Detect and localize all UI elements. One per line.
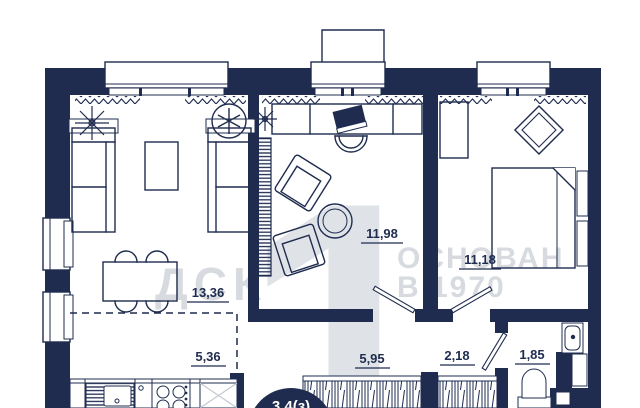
door-leaf-bathroom xyxy=(482,333,507,370)
label-study-area: 11,98 xyxy=(366,226,398,241)
wall-duct-strip xyxy=(556,352,572,390)
plant-icon xyxy=(75,106,109,140)
floor-plan-svg: ДСК 1 ОСНОВАН В 1970 xyxy=(0,0,640,408)
label-hall-area: 2,18 xyxy=(444,348,469,363)
vent-shaft xyxy=(572,354,587,386)
hallway-wardrobe xyxy=(303,376,497,408)
bedroom-armchair xyxy=(515,106,563,154)
label-kitchen-area: 5,36 xyxy=(195,349,220,364)
nightstand xyxy=(577,221,588,266)
wall-wardrobe-post xyxy=(421,372,438,408)
window-living xyxy=(105,62,228,96)
curtains xyxy=(75,96,586,104)
nightstand xyxy=(577,171,588,216)
wall-study-bedroom xyxy=(423,95,438,322)
curtain-icon xyxy=(365,96,423,104)
window-study xyxy=(311,62,385,96)
curtain-icon xyxy=(185,96,246,104)
wall-bathroom-jamb xyxy=(495,322,508,333)
wall-door-post xyxy=(415,309,453,322)
fridge-cabinet xyxy=(200,383,237,408)
label-hallway-area: 5,95 xyxy=(359,351,384,366)
coffee-table xyxy=(145,142,178,190)
curtain-icon xyxy=(262,96,320,104)
bathroom-sink xyxy=(562,323,583,353)
floor-plan: ДСК 1 ОСНОВАН В 1970 xyxy=(0,0,640,408)
balcony-outline xyxy=(322,30,384,66)
shelving-strip xyxy=(257,138,271,276)
vent-shaft-small xyxy=(556,392,570,405)
kitchen xyxy=(70,379,237,408)
window-left-2 xyxy=(43,292,73,342)
label-bedroom-area: 11,18 xyxy=(464,252,496,267)
wall-bathroom-top xyxy=(490,309,601,322)
curtain-icon xyxy=(440,96,492,104)
wardrobe-hatch xyxy=(438,381,497,408)
label-bathroom-area: 1,85 xyxy=(519,347,544,362)
toilet xyxy=(518,369,551,408)
curtain-icon xyxy=(75,96,140,104)
window-bedroom xyxy=(477,62,550,96)
window-left-1 xyxy=(43,218,73,270)
wall-right xyxy=(588,68,601,408)
sofa-left xyxy=(72,128,115,232)
badge-label: 3,4(з) xyxy=(272,398,310,408)
wall-hallway-left xyxy=(248,309,373,322)
zone-dashed-line xyxy=(70,313,237,378)
curtain-icon xyxy=(534,96,586,104)
label-living-area: 13,36 xyxy=(192,285,225,300)
